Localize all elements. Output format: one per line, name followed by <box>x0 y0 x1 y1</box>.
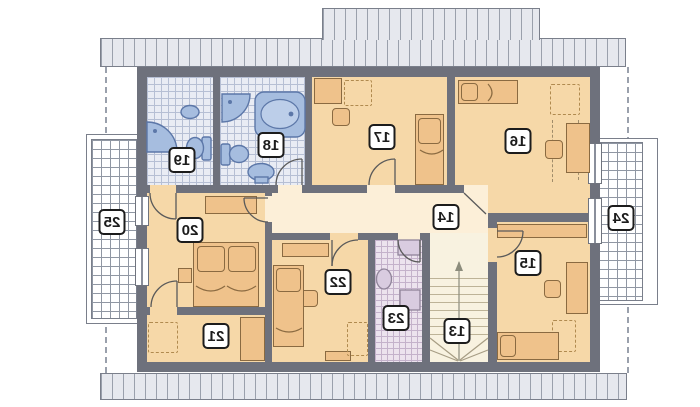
door-opening-17 <box>367 185 395 193</box>
door-opening-22 <box>330 233 358 240</box>
door-opening-21 <box>150 307 177 315</box>
door-opening-18 <box>278 185 302 193</box>
room-label-19: 19 <box>169 147 196 173</box>
room-label-16: 16 <box>505 128 532 154</box>
desk <box>566 262 588 314</box>
window-right <box>588 143 602 184</box>
room-label-24: 24 <box>608 205 635 231</box>
room-label-14: 14 <box>433 204 460 230</box>
sofa-bed <box>240 317 265 361</box>
room-label-13: 13 <box>444 318 471 344</box>
room-16-extension <box>488 185 590 213</box>
wall <box>305 77 312 185</box>
pillow <box>418 118 441 144</box>
room-label-22: 22 <box>325 269 352 295</box>
roof-eave-top <box>100 38 626 67</box>
window-left <box>135 248 149 286</box>
wardrobe-dashed <box>347 322 368 356</box>
door-opening-19-20 <box>150 185 176 193</box>
roof-dormer <box>322 8 540 40</box>
room-label-25: 25 <box>99 209 126 235</box>
room-18-bathroom <box>220 77 305 185</box>
wardrobe-dashed <box>550 84 580 115</box>
room-label-15: 15 <box>515 250 542 276</box>
desk <box>566 123 590 173</box>
floor-plan: 13 14 15 16 17 18 19 20 21 22 23 24 25 <box>0 0 700 407</box>
balcony-door-right <box>588 198 602 244</box>
room-23-laundry <box>375 240 422 362</box>
desk <box>314 78 342 104</box>
desk <box>282 243 329 257</box>
wall <box>213 77 220 185</box>
pillow <box>461 83 478 101</box>
room-label-18: 18 <box>258 132 285 158</box>
bench <box>205 196 257 214</box>
balcony-door-left <box>135 196 149 226</box>
room-label-23: 23 <box>383 305 410 331</box>
wardrobe-dashed <box>148 322 178 353</box>
door-opening-20 <box>265 196 272 222</box>
roof-eave-bottom <box>100 373 627 400</box>
chair <box>544 280 561 298</box>
door-opening-16 <box>464 185 488 193</box>
chair <box>545 140 563 159</box>
wall <box>447 77 455 185</box>
room-label-20: 20 <box>177 217 204 243</box>
door-opening-23 <box>398 233 420 240</box>
nightstand <box>178 268 192 283</box>
wardrobe-dashed <box>344 80 372 106</box>
room-label-17: 17 <box>369 124 396 150</box>
pillow <box>500 335 516 357</box>
door-opening-15 <box>488 228 497 262</box>
chair <box>332 108 350 126</box>
pillow <box>276 268 301 292</box>
room-label-21: 21 <box>203 323 230 349</box>
pillow <box>228 246 256 272</box>
cabinet <box>497 224 587 238</box>
pillow <box>197 246 225 272</box>
